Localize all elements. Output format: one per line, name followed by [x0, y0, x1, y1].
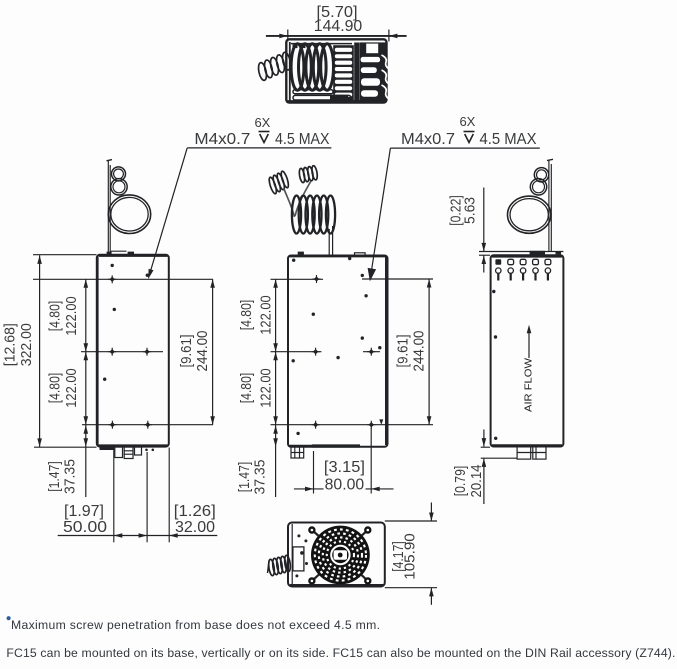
svg-text:244.00: 244.00 — [195, 331, 211, 372]
svg-text:M4x0.7: M4x0.7 — [401, 131, 455, 148]
svg-text:[1.97]: [1.97] — [64, 503, 104, 520]
svg-text:AIR FLOW: AIR FLOW — [524, 357, 535, 412]
svg-text:50.00: 50.00 — [63, 519, 107, 536]
svg-text:6X: 6X — [254, 115, 270, 130]
svg-text:122.00: 122.00 — [258, 368, 274, 408]
svg-text:37.35: 37.35 — [63, 459, 79, 494]
svg-text:[12.68]: [12.68] — [3, 323, 19, 366]
svg-text:4.5 MAX: 4.5 MAX — [480, 131, 538, 148]
svg-text:37.35: 37.35 — [252, 460, 268, 495]
svg-text:105.90: 105.90 — [402, 533, 418, 580]
svg-text:[4.80]: [4.80] — [48, 373, 64, 404]
svg-text:[1.47]: [1.47] — [237, 462, 253, 493]
svg-text:122.00: 122.00 — [64, 368, 80, 408]
svg-text:244.00: 244.00 — [411, 331, 427, 372]
svg-text:[9.61]: [9.61] — [396, 335, 412, 368]
svg-text:20.14: 20.14 — [469, 465, 485, 498]
svg-text:[9.61]: [9.61] — [179, 335, 195, 368]
svg-text:Maximum screw penetration from: Maximum screw penetration from base does… — [11, 618, 380, 632]
svg-text:[4.80]: [4.80] — [48, 301, 64, 332]
svg-text:122.00: 122.00 — [64, 296, 80, 336]
svg-text:[1.47]: [1.47] — [47, 461, 63, 492]
svg-text:6X: 6X — [459, 114, 475, 129]
svg-text:122.00: 122.00 — [258, 295, 274, 335]
svg-text:FC15 can be mounted on its bas: FC15 can be mounted on its base, vertica… — [6, 646, 675, 660]
svg-text:[1.26]: [1.26] — [174, 503, 216, 520]
svg-text:[4.80]: [4.80] — [239, 373, 255, 404]
svg-text:4.5 MAX: 4.5 MAX — [275, 131, 330, 148]
svg-text:[4.80]: [4.80] — [239, 300, 255, 331]
svg-text:322.00: 322.00 — [19, 323, 35, 366]
svg-text:80.00: 80.00 — [325, 477, 365, 494]
svg-text:[0.79]: [0.79] — [453, 466, 469, 497]
svg-text:M4x0.7: M4x0.7 — [194, 131, 250, 148]
svg-text:[3.15]: [3.15] — [324, 459, 365, 476]
svg-text:32.00: 32.00 — [175, 519, 215, 536]
svg-text:5.63: 5.63 — [463, 197, 479, 224]
svg-text:144.90: 144.90 — [314, 18, 363, 35]
